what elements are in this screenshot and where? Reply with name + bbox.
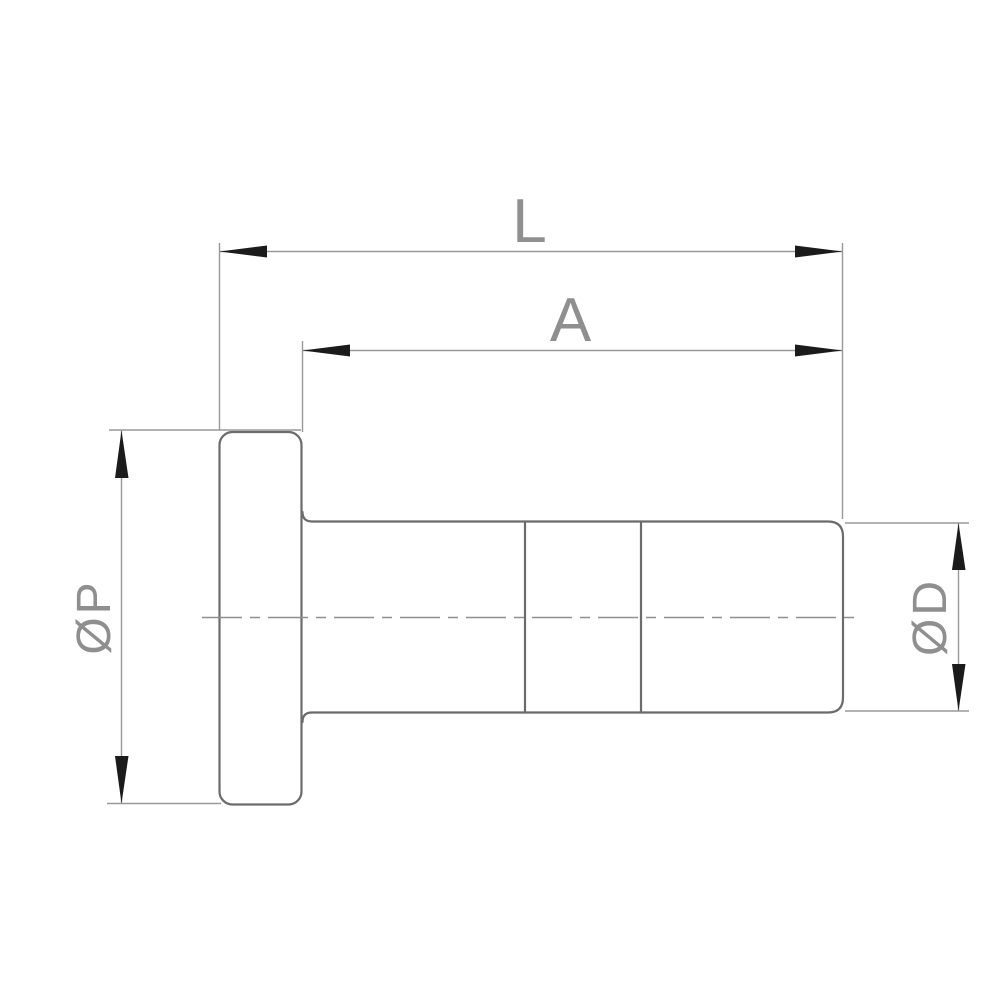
dim-L-arrow-right — [795, 246, 843, 258]
drawing-page: L A ØP ØD — [0, 0, 1000, 1000]
technical-drawing-canvas: L A ØP ØD — [0, 0, 1000, 1000]
dim-P-label: ØP — [68, 579, 121, 654]
dim-D-arrow-bottom — [952, 664, 966, 711]
flange-outline — [220, 432, 302, 805]
dim-L-arrow-left — [220, 246, 268, 258]
dim-A-arrow-left — [303, 345, 351, 357]
dim-A-arrow-right — [795, 345, 843, 357]
dim-P-arrow-top — [115, 431, 129, 479]
dim-D-label: ØD — [904, 578, 957, 656]
dim-D-arrow-top — [952, 523, 966, 570]
dimension-lines-group — [107, 243, 969, 804]
dim-P-arrow-bottom — [115, 756, 129, 804]
dim-L-label: L — [512, 187, 547, 256]
dim-A-label: A — [550, 286, 592, 355]
part-outline-group — [220, 432, 844, 805]
